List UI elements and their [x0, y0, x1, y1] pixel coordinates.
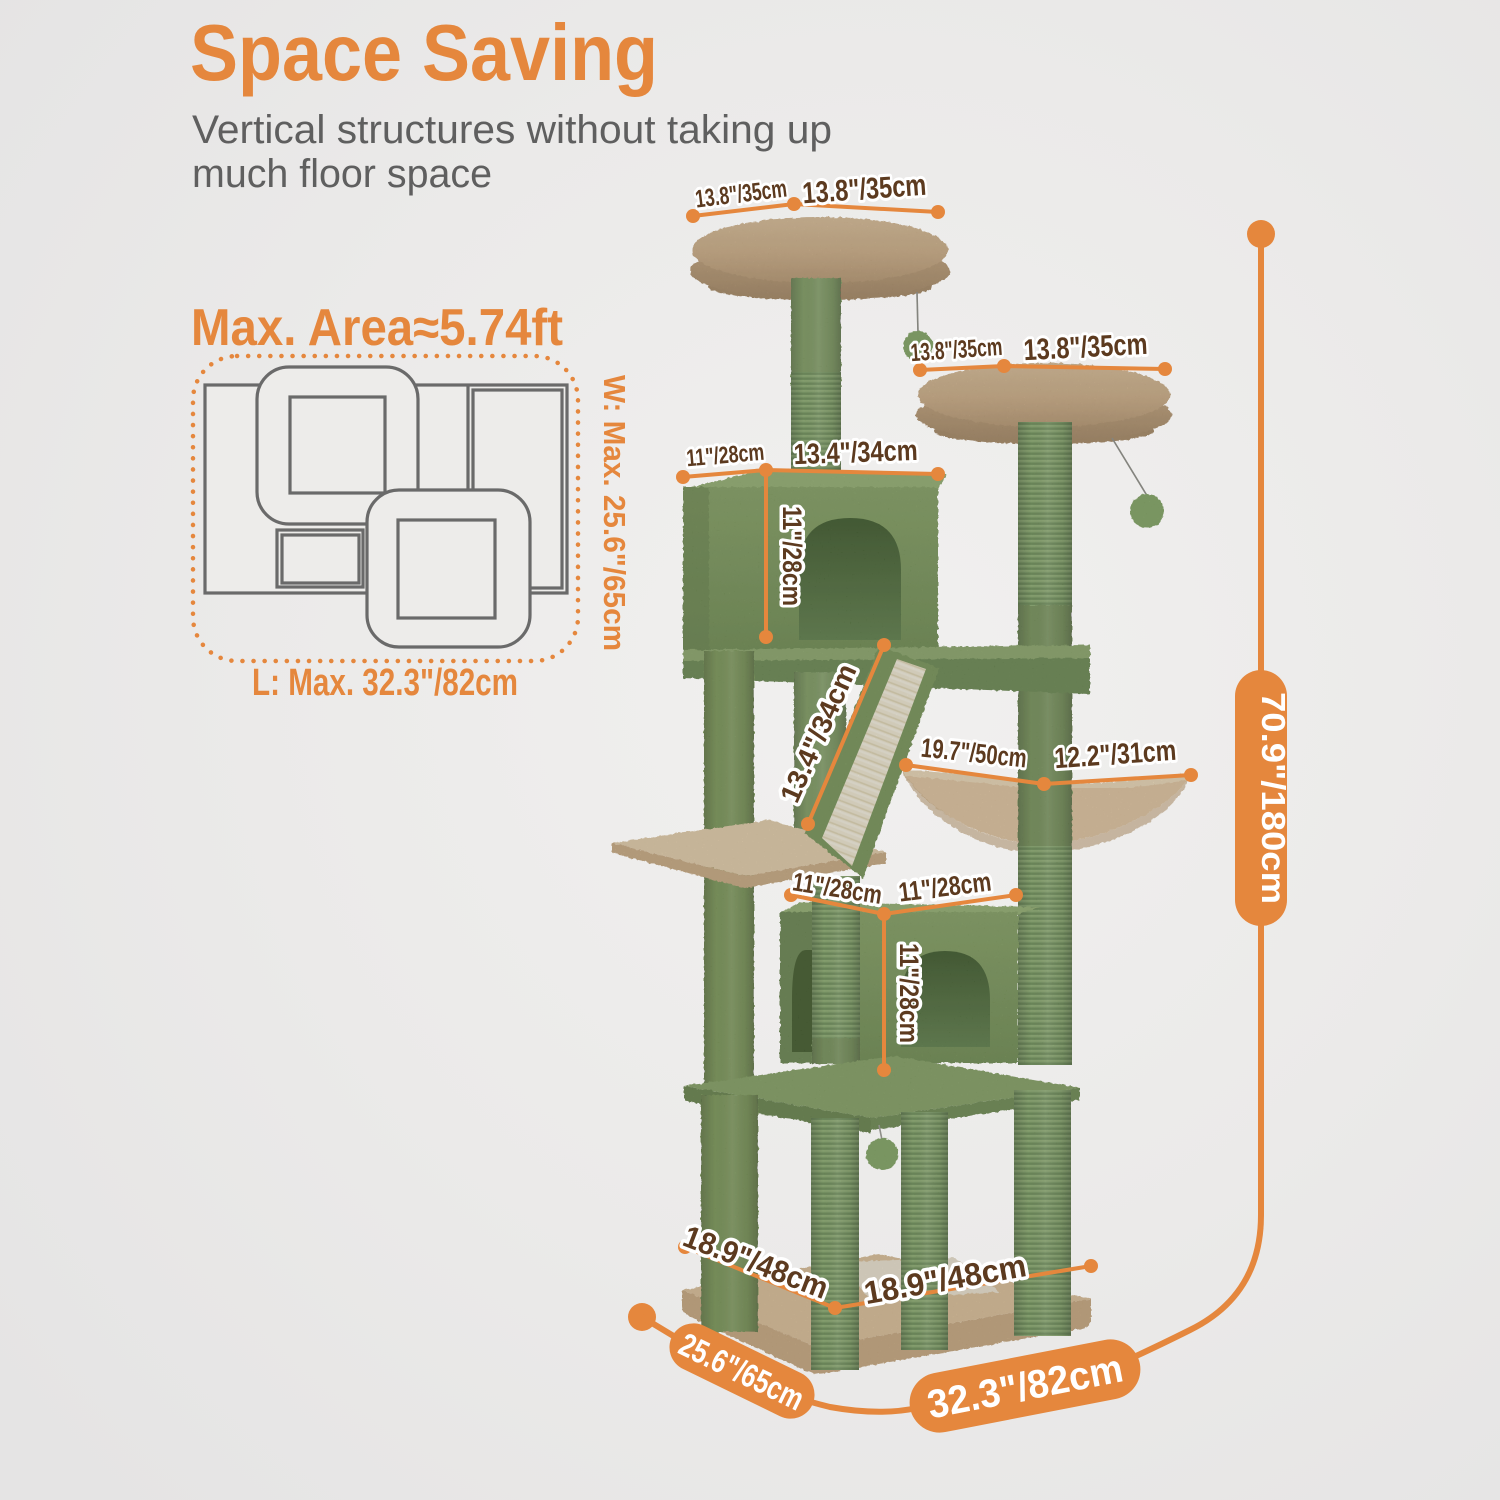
svg-text:L: Max. 32.3"/82cm: L: Max. 32.3"/82cm [252, 662, 518, 704]
svg-text:Max. Area≈5.74ft: Max. Area≈5.74ft [191, 299, 563, 357]
svg-text:13.4"/34cm: 13.4"/34cm [793, 435, 918, 471]
svg-text:11"/28cm: 11"/28cm [777, 506, 807, 606]
svg-text:13.8"/35cm: 13.8"/35cm [1023, 328, 1149, 367]
svg-text:11"/28cm: 11"/28cm [894, 943, 924, 1043]
svg-text:Space Saving: Space Saving [190, 8, 658, 97]
svg-text:W: Max. 25.6"/65cm: W: Max. 25.6"/65cm [597, 375, 632, 651]
svg-text:70.9"/180cm: 70.9"/180cm [1255, 692, 1292, 904]
svg-text:much floor space: much floor space [192, 152, 492, 196]
svg-text:Vertical structures without ta: Vertical structures without taking up [192, 108, 832, 152]
